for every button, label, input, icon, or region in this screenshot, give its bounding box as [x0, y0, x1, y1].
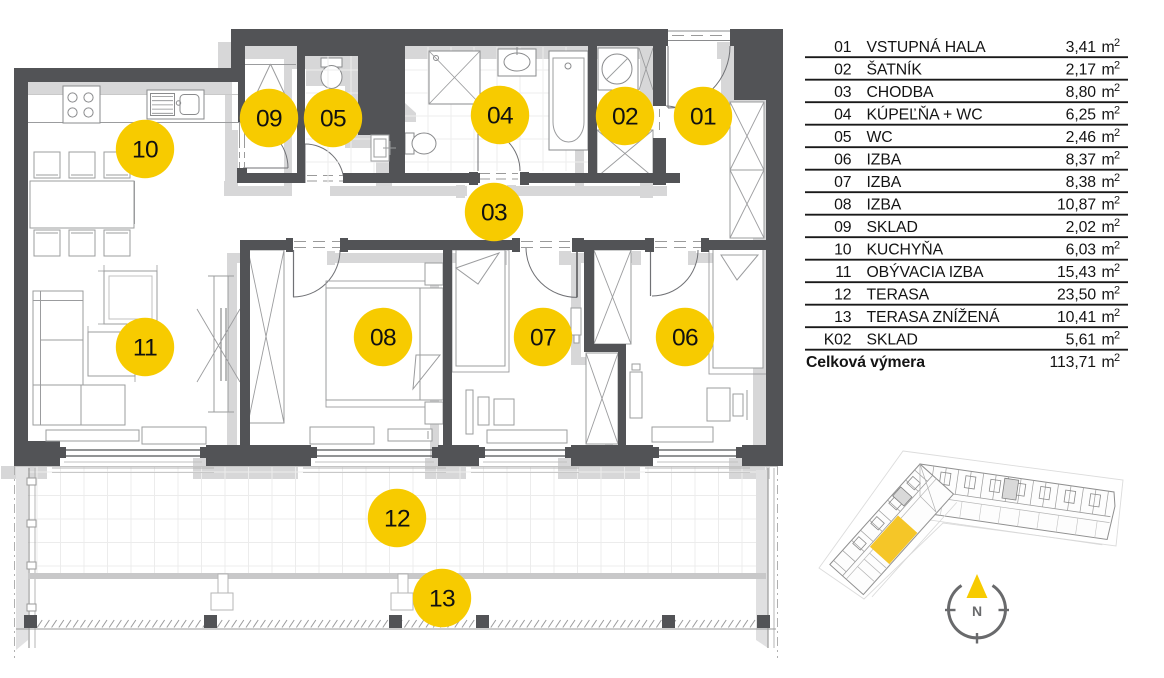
svg-text:IZBA: IZBA	[867, 152, 902, 169]
svg-text:8,38: 8,38	[1066, 174, 1097, 191]
svg-text:m: m	[1102, 84, 1115, 101]
svg-text:CHODBA: CHODBA	[867, 84, 935, 101]
svg-text:06: 06	[834, 152, 852, 169]
svg-text:10: 10	[834, 242, 852, 259]
svg-text:IZBA: IZBA	[867, 197, 902, 214]
svg-text:m: m	[1102, 129, 1115, 146]
svg-text:8,80: 8,80	[1066, 84, 1097, 101]
svg-text:11: 11	[133, 335, 157, 362]
svg-text:WC: WC	[867, 129, 893, 146]
svg-text:6,25: 6,25	[1066, 107, 1097, 124]
svg-text:ŠATNÍK: ŠATNÍK	[867, 60, 923, 79]
svg-text:m: m	[1102, 309, 1115, 326]
svg-text:m: m	[1102, 264, 1115, 281]
svg-text:12: 12	[834, 287, 851, 304]
svg-text:13: 13	[834, 309, 852, 326]
svg-text:2: 2	[1114, 285, 1120, 297]
svg-text:05: 05	[320, 106, 346, 133]
svg-text:13: 13	[429, 586, 455, 613]
svg-text:SKLAD: SKLAD	[867, 219, 918, 236]
svg-text:10,87: 10,87	[1057, 197, 1096, 214]
svg-text:04: 04	[834, 107, 852, 124]
svg-text:05: 05	[834, 129, 852, 146]
svg-text:2: 2	[1114, 330, 1120, 342]
svg-text:KUCHYŇA: KUCHYŇA	[867, 240, 944, 259]
svg-text:2: 2	[1114, 60, 1120, 72]
svg-text:03: 03	[481, 200, 507, 227]
svg-text:15,43: 15,43	[1057, 264, 1096, 281]
svg-text:2: 2	[1114, 150, 1120, 162]
svg-text:TERASA ZNÍŽENÁ: TERASA ZNÍŽENÁ	[867, 307, 1000, 326]
svg-text:2,46: 2,46	[1066, 129, 1097, 146]
svg-text:K02: K02	[824, 332, 852, 349]
svg-text:5,61: 5,61	[1066, 332, 1097, 349]
svg-text:m: m	[1102, 197, 1115, 214]
svg-text:04: 04	[487, 103, 513, 130]
svg-text:OBÝVACIA IZBA: OBÝVACIA IZBA	[867, 262, 984, 281]
svg-text:m: m	[1102, 152, 1115, 169]
svg-text:10: 10	[132, 137, 158, 164]
svg-text:07: 07	[530, 325, 556, 352]
svg-text:VSTUPNÁ HALA: VSTUPNÁ HALA	[867, 37, 987, 56]
svg-text:08: 08	[834, 197, 852, 214]
svg-text:01: 01	[690, 104, 716, 131]
svg-text:2: 2	[1114, 172, 1120, 184]
svg-text:m: m	[1102, 107, 1115, 124]
svg-text:m: m	[1102, 219, 1115, 236]
svg-text:2: 2	[1114, 262, 1120, 274]
svg-text:6,03: 6,03	[1066, 242, 1097, 259]
svg-text:2,02: 2,02	[1066, 219, 1096, 236]
svg-text:02: 02	[612, 104, 638, 131]
svg-text:2: 2	[1114, 307, 1120, 319]
svg-text:08: 08	[370, 325, 396, 352]
svg-text:09: 09	[256, 106, 282, 133]
svg-text:01: 01	[834, 39, 852, 56]
svg-text:2: 2	[1114, 82, 1120, 94]
svg-text:KÚPEĽŇA + WC: KÚPEĽŇA + WC	[867, 105, 983, 124]
svg-text:2,17: 2,17	[1066, 62, 1096, 79]
svg-text:m: m	[1102, 242, 1115, 259]
svg-text:12: 12	[384, 506, 410, 533]
svg-text:3,41: 3,41	[1066, 39, 1097, 56]
svg-text:m: m	[1102, 354, 1115, 371]
svg-text:SKLAD: SKLAD	[867, 332, 918, 349]
svg-text:07: 07	[834, 174, 851, 191]
svg-text:N: N	[972, 603, 982, 619]
svg-text:m: m	[1102, 174, 1115, 191]
svg-text:Celková výmera: Celková výmera	[806, 354, 925, 371]
svg-text:2: 2	[1114, 127, 1120, 139]
svg-text:m: m	[1102, 287, 1115, 304]
svg-text:06: 06	[672, 325, 698, 352]
svg-text:TERASA: TERASA	[867, 287, 930, 304]
svg-text:m: m	[1102, 39, 1115, 56]
svg-text:03: 03	[834, 84, 852, 101]
svg-text:2: 2	[1114, 105, 1120, 117]
svg-text:IZBA: IZBA	[867, 174, 902, 191]
svg-text:10,41: 10,41	[1057, 309, 1096, 326]
svg-text:m: m	[1102, 332, 1115, 349]
svg-text:m: m	[1102, 62, 1115, 79]
svg-text:2: 2	[1114, 240, 1120, 252]
svg-text:09: 09	[834, 219, 852, 236]
svg-text:8,37: 8,37	[1066, 152, 1096, 169]
svg-text:2: 2	[1114, 37, 1120, 49]
svg-text:2: 2	[1114, 195, 1120, 207]
svg-text:11: 11	[835, 264, 852, 281]
svg-text:2: 2	[1114, 352, 1120, 364]
svg-text:113,71: 113,71	[1049, 354, 1096, 371]
svg-text:23,50: 23,50	[1057, 287, 1096, 304]
svg-text:02: 02	[834, 62, 851, 79]
svg-text:2: 2	[1114, 217, 1120, 229]
